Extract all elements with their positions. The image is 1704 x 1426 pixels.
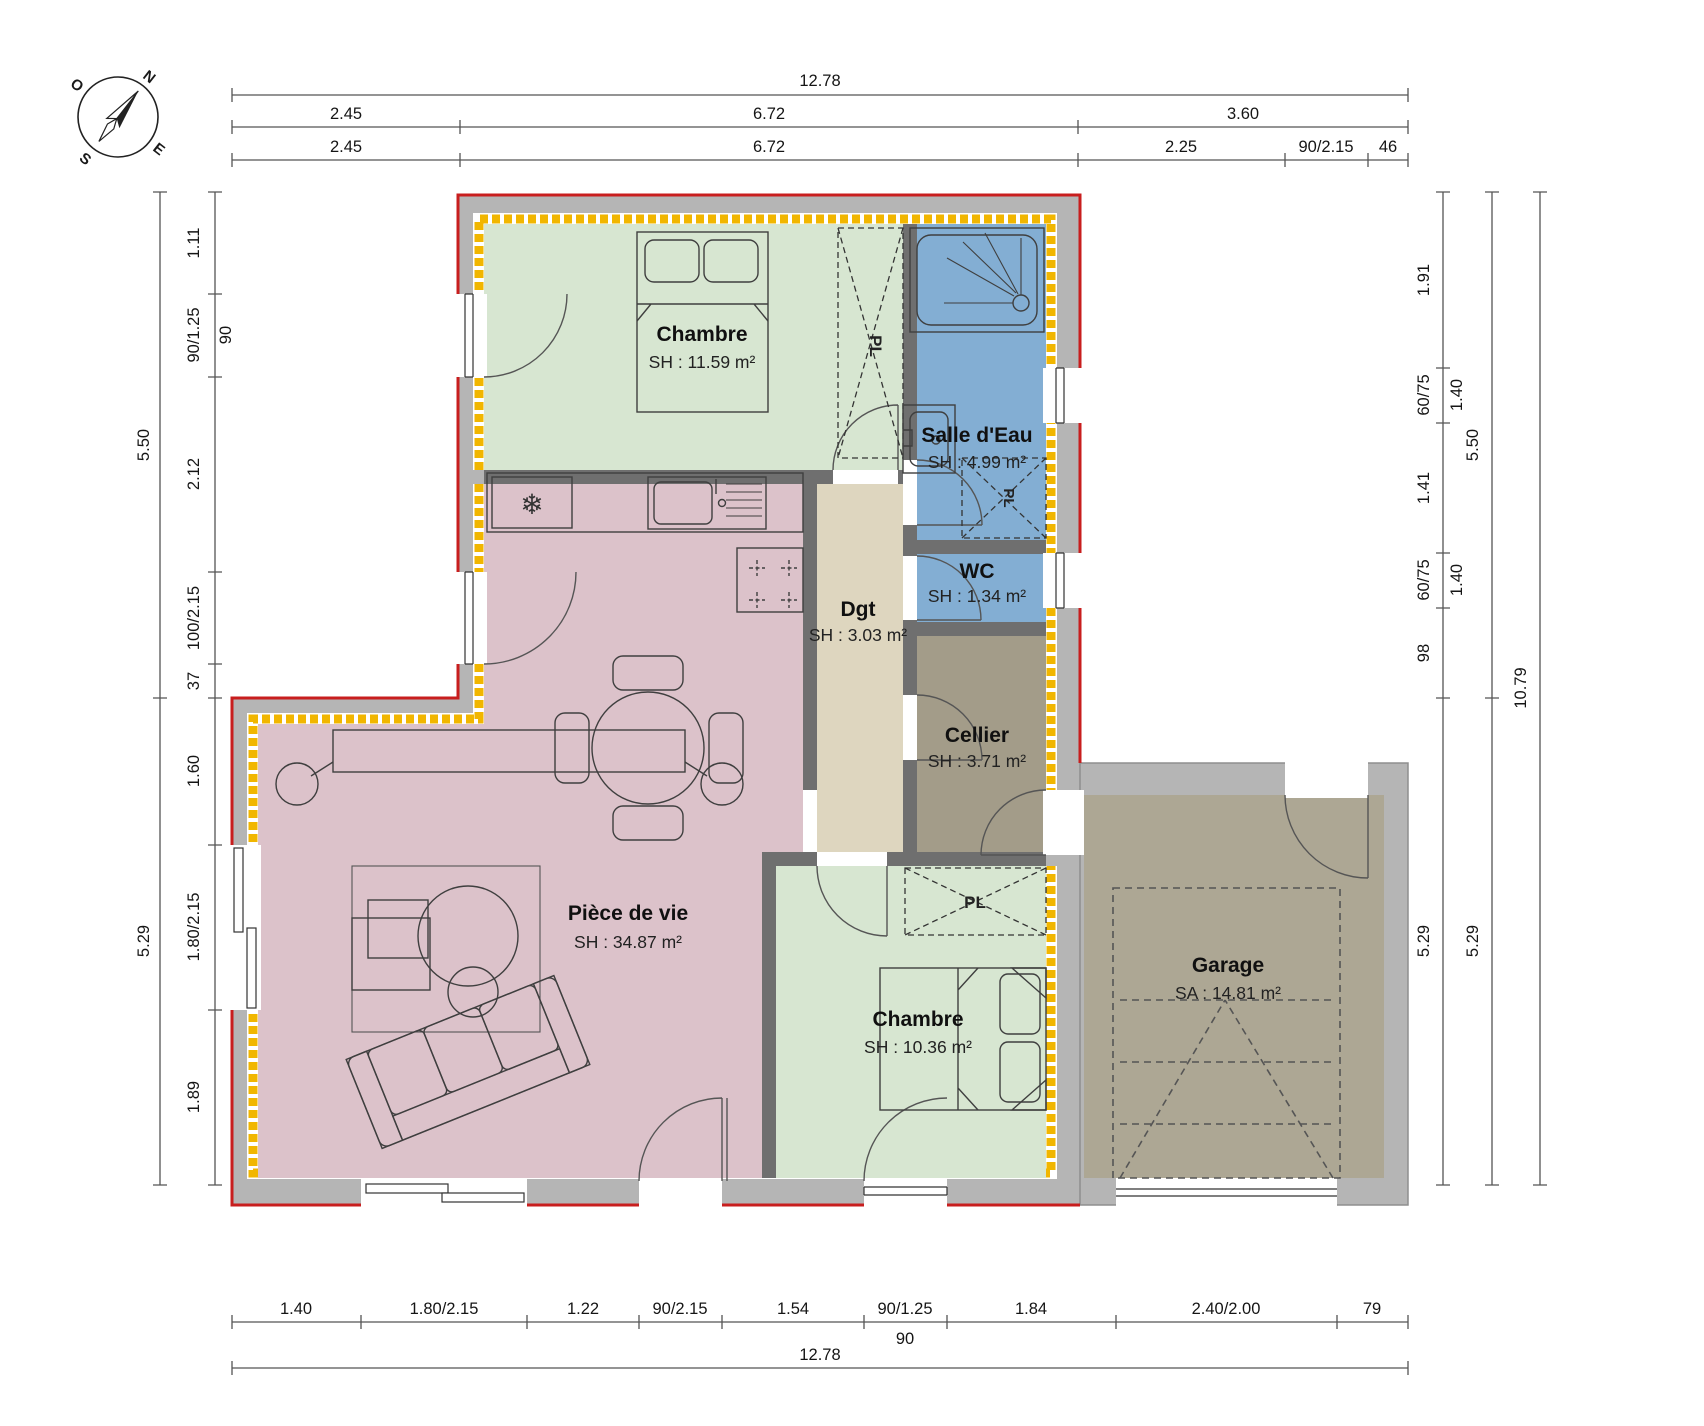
window-salle-deau-east (1043, 368, 1083, 423)
dim-bot-9: 79 (1363, 1300, 1381, 1318)
area-dgt: SH : 3.03 m² (809, 625, 907, 645)
label-piece-de-vie: Pièce de vie (568, 902, 688, 925)
dim-left-8: 1.89 (185, 1081, 203, 1113)
dim-left-6: 1.60 (185, 755, 203, 787)
closet-label-salle-deau: PL (1000, 488, 1017, 507)
area-piece-de-vie: SH : 34.87 m² (574, 932, 682, 952)
label-salle-deau: Salle d'Eau (921, 424, 1032, 447)
dim-top-3-3: 2.25 (1165, 138, 1197, 156)
label-chambre-1: Chambre (656, 323, 747, 346)
compass-east-label: E (149, 140, 167, 160)
dim-bot-3: 1.22 (567, 1300, 599, 1318)
door-opening-cellier (903, 695, 917, 760)
dim-right-1: 1.91 (1415, 264, 1433, 296)
door-opening-cellier-garage (1043, 790, 1084, 855)
window-chambre-2-south (864, 1178, 947, 1208)
area-garage: SA : 14.81 m² (1175, 983, 1281, 1003)
entry-door-south (639, 1178, 722, 1208)
fridge-snowflake-icon: ❄ (520, 489, 543, 520)
dim-right-outer: 10.79 (1512, 667, 1530, 708)
label-garage: Garage (1192, 954, 1264, 977)
compass-rose: N E S O (34, 35, 199, 201)
dim-right-mid-2: 5.29 (1464, 925, 1482, 957)
dim-left-3: 2.12 (185, 458, 203, 490)
dim-bottom (232, 1315, 1408, 1375)
dim-right-2b: 1.40 (1448, 379, 1466, 411)
dim-left-7: 1.80/2.15 (185, 893, 203, 962)
dim-right-6: 5.29 (1415, 925, 1433, 957)
dim-bottom-total: 12.78 (799, 1346, 840, 1364)
passage-dgt (803, 790, 817, 852)
dim-bot-4: 90/2.15 (652, 1300, 707, 1318)
floor-plan-page: N E S O (0, 0, 1704, 1426)
dim-bot-8: 2.40/2.00 (1192, 1300, 1261, 1318)
dim-top (232, 88, 1408, 167)
dim-right-4b: 1.40 (1448, 564, 1466, 596)
dim-right (1436, 192, 1547, 1185)
closet-label-chambre-1: PL (866, 335, 885, 357)
dim-left-outer-1: 5.50 (135, 429, 153, 461)
dim-bot-6b: 90 (896, 1330, 914, 1348)
garage-door-south (1116, 1178, 1337, 1208)
compass-north-label: N (140, 67, 159, 87)
dim-bot-5: 1.54 (777, 1300, 809, 1318)
dim-right-4: 60/75 (1415, 559, 1433, 600)
door-opening-salle-deau (903, 460, 917, 525)
dim-top-2-2: 6.72 (753, 105, 785, 123)
dim-left-2: 90/1.25 (185, 307, 203, 362)
dim-top-2-3: 3.60 (1227, 105, 1259, 123)
dim-left-outer-2: 5.29 (135, 925, 153, 957)
dim-top-3-1: 2.45 (330, 138, 362, 156)
dim-bot-7: 1.84 (1015, 1300, 1047, 1318)
door-opening-chambre-1 (833, 470, 898, 484)
window-chambre-1-west (453, 294, 487, 377)
area-chambre-2: SH : 10.36 m² (864, 1037, 972, 1057)
dim-bot-1: 1.40 (280, 1300, 312, 1318)
dim-right-mid-1: 5.50 (1464, 429, 1482, 461)
label-wc: WC (960, 560, 995, 583)
compass-needle-tail (96, 116, 120, 144)
room-chambre-1 (484, 224, 903, 470)
compass-west-label: O (67, 75, 87, 96)
dim-left-4: 100/2.15 (185, 586, 203, 650)
dim-bot-2: 1.80/2.15 (410, 1300, 479, 1318)
area-salle-deau: SH : 4.99 m² (928, 452, 1026, 472)
dim-left-5: 37 (185, 672, 203, 690)
label-chambre-2: Chambre (872, 1008, 963, 1031)
dim-left-1: 1.11 (185, 228, 203, 259)
dim-bot-6: 90/1.25 (877, 1300, 932, 1318)
area-cellier: SH : 3.71 m² (928, 751, 1026, 771)
dim-right-2: 60/75 (1415, 374, 1433, 415)
door-opening-chambre-2 (817, 852, 887, 866)
dim-top-3-5: 46 (1379, 138, 1397, 156)
dim-top-total: 12.78 (799, 72, 840, 90)
dim-top-3-2: 6.72 (753, 138, 785, 156)
door-garage-north (1285, 760, 1368, 798)
closet-label-chambre-2: PL (964, 893, 986, 912)
label-cellier: Cellier (945, 724, 1009, 747)
dim-right-3: 1.41 (1415, 472, 1433, 504)
area-wc: SH : 1.34 m² (928, 586, 1026, 606)
compass-south-label: S (76, 149, 94, 169)
room-salle-deau (917, 224, 1046, 540)
room-piece-de-vie (258, 484, 803, 1178)
dim-top-2-1: 2.45 (330, 105, 362, 123)
area-chambre-1: SH : 11.59 m² (649, 352, 756, 372)
dim-right-5: 98 (1415, 644, 1433, 662)
dim-left-2b: 90 (217, 326, 235, 344)
label-dgt: Dgt (841, 598, 876, 621)
window-kitchen-west (453, 572, 487, 664)
room-dgt (817, 484, 903, 852)
window-wc-east (1043, 553, 1083, 608)
dim-top-3-4: 90/2.15 (1298, 138, 1353, 156)
door-opening-wc (903, 556, 917, 620)
